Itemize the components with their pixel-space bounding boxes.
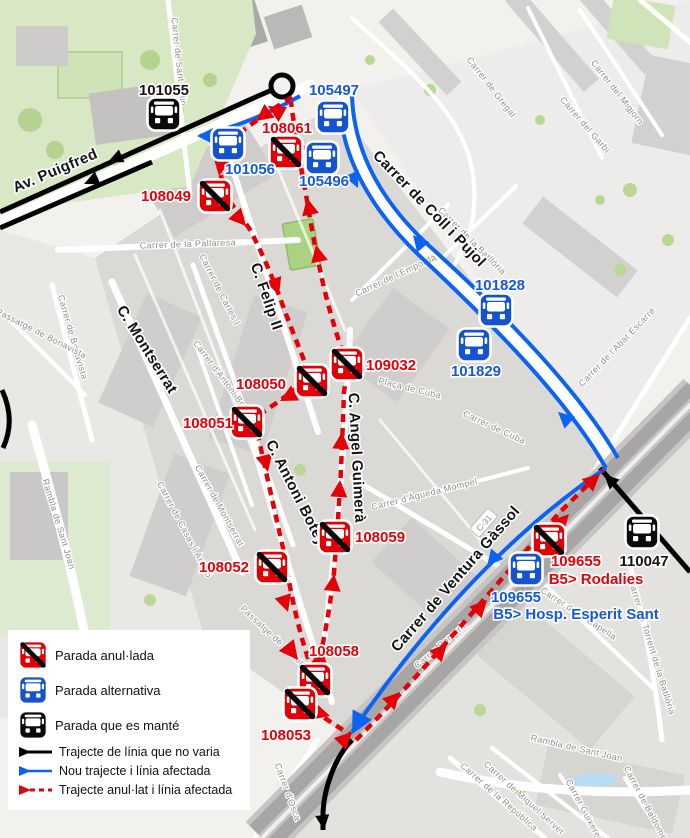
stop-label: 108059: [355, 529, 405, 546]
stop-label: 108058: [309, 643, 359, 660]
stop-label: 108052: [199, 559, 249, 576]
stop-label: 108050: [236, 376, 286, 393]
stop-label: 108049: [141, 188, 191, 205]
stop-label: 108061: [262, 120, 312, 137]
new-route-line-icon: [18, 765, 52, 777]
alternative-stop-icon-101056: [212, 128, 245, 161]
maintained-stop-icon: [18, 710, 48, 740]
stop-label: 109655: [491, 589, 541, 606]
legend-label: Parada alternativa: [55, 683, 161, 698]
alternative-stop-icon-105496: [306, 142, 339, 175]
maintained-stop-icon-110047: [626, 516, 659, 549]
legend-item-cancelled-stop: Parada anul·lada: [18, 640, 244, 670]
legend-label: Trajecte anul·lat i línia afectada: [59, 783, 232, 797]
cancelled-route-line-icon: [18, 784, 52, 796]
legend: Parada anul·lada Parada alternativa Para…: [8, 630, 250, 810]
cancelled-stop-icon-108053: [284, 688, 317, 721]
stop-label: 110047: [619, 553, 668, 570]
cancelled-stop-icon-108050: [296, 365, 329, 398]
legend-label: Parada anul·lada: [55, 648, 154, 663]
stop-label: 101055: [139, 82, 189, 99]
legend-item-new-route: Nou trajecte i línia afectada: [18, 764, 244, 778]
alternative-stop-icon-105497: [317, 101, 350, 134]
stop-label: 108053: [261, 727, 311, 744]
stop-label: 105496: [299, 173, 349, 190]
stop-label: B5> Rodalies: [549, 571, 644, 588]
legend-item-maintained-stop: Parada que es manté: [18, 710, 244, 740]
alternative-stop-icon-101828: [480, 294, 513, 327]
bus-diversion-map: Carrer de Sant Felip Carrer de la Pallar…: [0, 0, 690, 838]
stop-label: 108051: [183, 415, 233, 432]
maintained-stop-icon-101055: [148, 98, 181, 131]
unchanged-route-line-icon: [18, 746, 52, 758]
stop-label: B5> Hosp. Esperit Sant: [493, 606, 658, 623]
legend-item-alternative-stop: Parada alternativa: [18, 675, 244, 705]
legend-item-unchanged-route: Trajecte de línia que no varia: [18, 745, 244, 759]
stop-label: 101056: [225, 161, 275, 178]
cancelled-stop-icon-108059: [319, 521, 352, 554]
alternative-stop-icon-101829: [458, 329, 491, 362]
legend-label: Trajecte de línia que no varia: [59, 745, 220, 759]
stop-label: 101828: [475, 277, 525, 294]
cancelled-stop-icon-108049: [199, 180, 232, 213]
stop-label: 101829: [451, 363, 501, 380]
stop-label: 109032: [366, 357, 416, 374]
stop-label: 105497: [309, 82, 359, 99]
legend-item-cancelled-route: Trajecte anul·lat i línia afectada: [18, 783, 244, 797]
alternative-stop-icon-109655: [510, 553, 543, 586]
legend-label: Parada que es manté: [55, 718, 179, 733]
alternative-stop-icon: [18, 675, 48, 705]
stop-label: 109655: [551, 553, 601, 570]
cancelled-stop-icon-108052: [256, 551, 289, 584]
cancelled-stop-icon-109032: [331, 348, 364, 381]
cancelled-stop-icon-109655: [533, 524, 566, 557]
cancelled-stop-icon-108051: [231, 406, 264, 439]
legend-label: Nou trajecte i línia afectada: [59, 764, 210, 778]
cancelled-stop-icon: [18, 640, 48, 670]
